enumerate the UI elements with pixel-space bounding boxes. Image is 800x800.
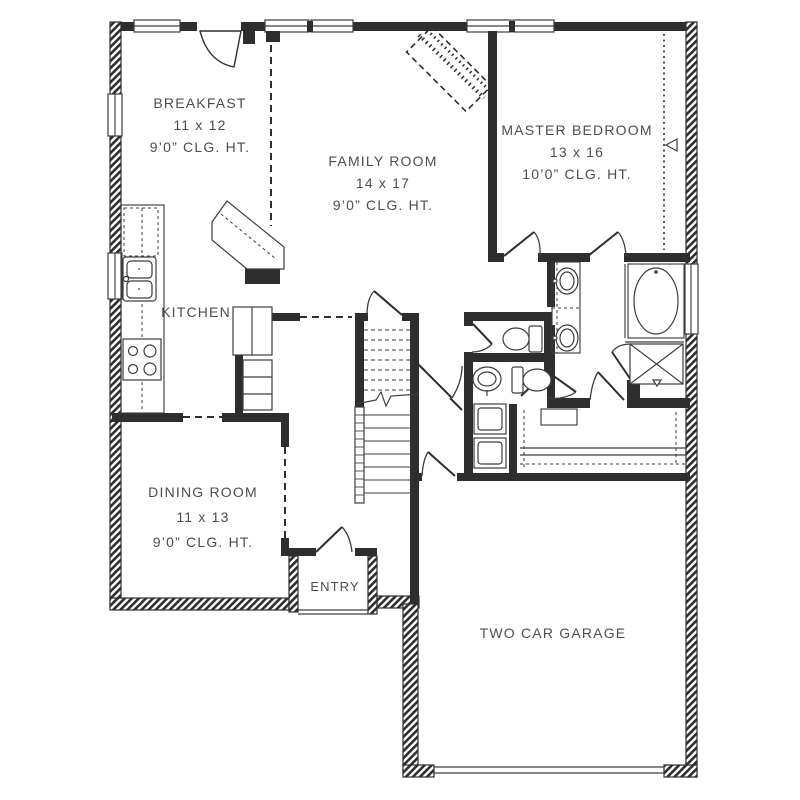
entry-detail — [298, 610, 368, 614]
refrigerator-icon — [233, 307, 272, 355]
tub-icon — [625, 264, 684, 342]
garage-wall-bottom-right — [664, 765, 697, 777]
master-ceiling-line — [664, 34, 677, 250]
floor-plan-drawing: BREAKFAST 11 x 12 9’0” CLG. HT. FAMILY R… — [0, 0, 800, 800]
family-room-windows — [265, 20, 353, 32]
hall-angled-door — [422, 366, 462, 398]
window-master-bath — [685, 264, 698, 334]
label-dining-name: DINING ROOM — [148, 484, 258, 500]
label-master-ceiling: 10’0” CLG. HT. — [522, 166, 631, 182]
direction-marker-icon — [666, 139, 677, 151]
label-master-dims: 13 x 16 — [550, 144, 604, 160]
cooktop-icon — [123, 339, 161, 380]
bath-fixtures — [473, 262, 686, 468]
staircase — [355, 330, 419, 503]
garage-entry-door — [422, 452, 455, 476]
room-labels: BREAKFAST 11 x 12 9’0” CLG. HT. FAMILY R… — [148, 95, 653, 641]
master-door-2 — [588, 232, 626, 256]
label-dining-ceiling: 9’0” CLG. HT. — [153, 534, 253, 550]
master-vanity-icon — [552, 262, 580, 353]
master-door-1 — [504, 232, 540, 256]
toilet-master-wc-icon — [503, 326, 542, 352]
shower-door — [612, 344, 631, 380]
label-kitchen-name: KITCHEN — [161, 304, 231, 320]
wc-door — [472, 324, 492, 352]
dryer-icon — [474, 438, 506, 468]
exterior-wall-bottom — [110, 598, 289, 610]
label-dining-dims: 11 x 13 — [176, 509, 229, 525]
corner-fireplace-icon — [407, 27, 492, 112]
label-family-ceiling: 9’0” CLG. HT. — [333, 197, 433, 213]
front-door — [316, 527, 352, 552]
stairs-top-door — [367, 291, 402, 315]
kitchen-bar — [212, 201, 284, 269]
garage-door — [434, 767, 664, 773]
porch-wall-right — [368, 556, 377, 614]
garage-wall-bottom-left — [403, 765, 434, 777]
shower-icon — [630, 344, 683, 386]
washer-icon — [474, 404, 506, 434]
master-bedroom-windows — [467, 20, 554, 32]
stairs-upper-treads — [364, 330, 410, 390]
master-bath-door — [590, 372, 624, 400]
hall-angled-stub-2 — [450, 398, 462, 410]
label-breakfast-name: BREAKFAST — [153, 95, 246, 111]
garage-wall-left — [403, 604, 418, 775]
label-master-name: MASTER BEDROOM — [501, 122, 652, 138]
pedestal-sink-icon — [473, 367, 501, 396]
label-entry-name: ENTRY — [310, 579, 359, 594]
toilet-powder-icon — [512, 367, 551, 393]
stairs-lower-treads — [364, 415, 410, 493]
mud-hall-detail — [520, 409, 686, 468]
porch-wall-left — [289, 556, 298, 612]
kitchen-upper-cabinet — [124, 208, 158, 256]
breakfast-window — [134, 20, 180, 32]
label-breakfast-dims: 11 x 12 — [173, 117, 226, 133]
label-garage-name: TWO CAR GARAGE — [480, 625, 627, 641]
pantry-icon — [243, 360, 272, 410]
label-family-name: FAMILY ROOM — [328, 153, 437, 169]
floor-plan-page: BREAKFAST 11 x 12 9’0” CLG. HT. FAMILY R… — [0, 0, 800, 800]
kitchen-sink-icon — [123, 257, 156, 301]
bench-icon — [541, 409, 577, 425]
stairs-break-line — [356, 392, 419, 406]
label-breakfast-ceiling: 9’0” CLG. HT. — [150, 139, 250, 155]
label-family-dims: 14 x 17 — [356, 175, 410, 191]
